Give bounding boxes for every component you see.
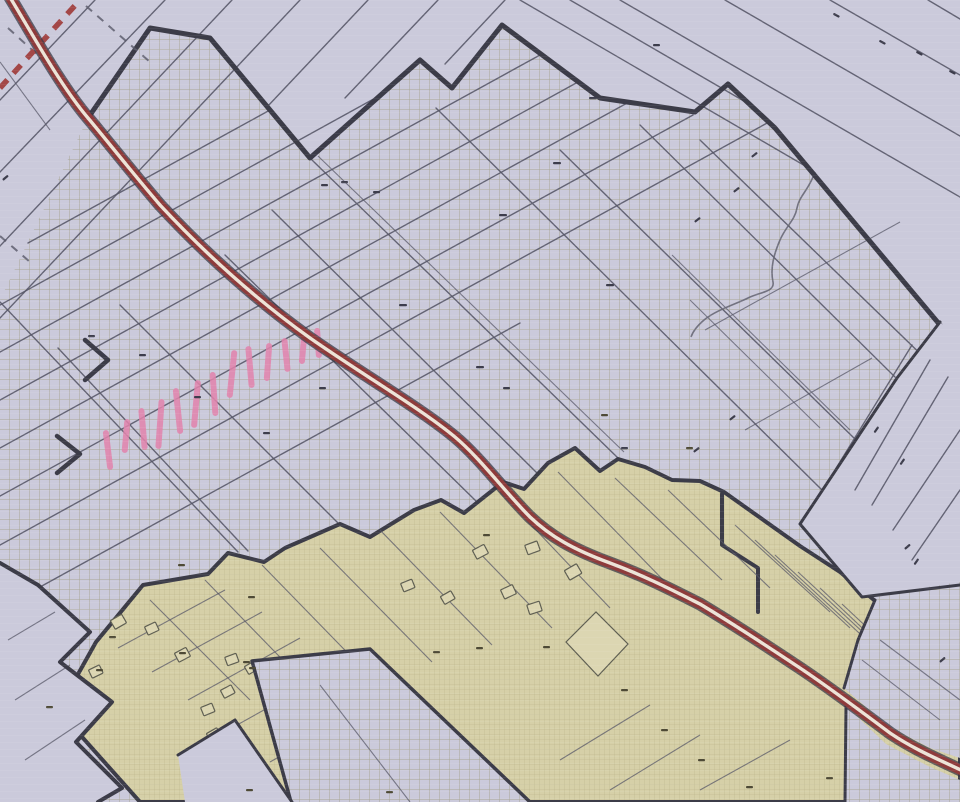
cadastral-map [0,0,960,802]
map-canvas [0,0,960,802]
